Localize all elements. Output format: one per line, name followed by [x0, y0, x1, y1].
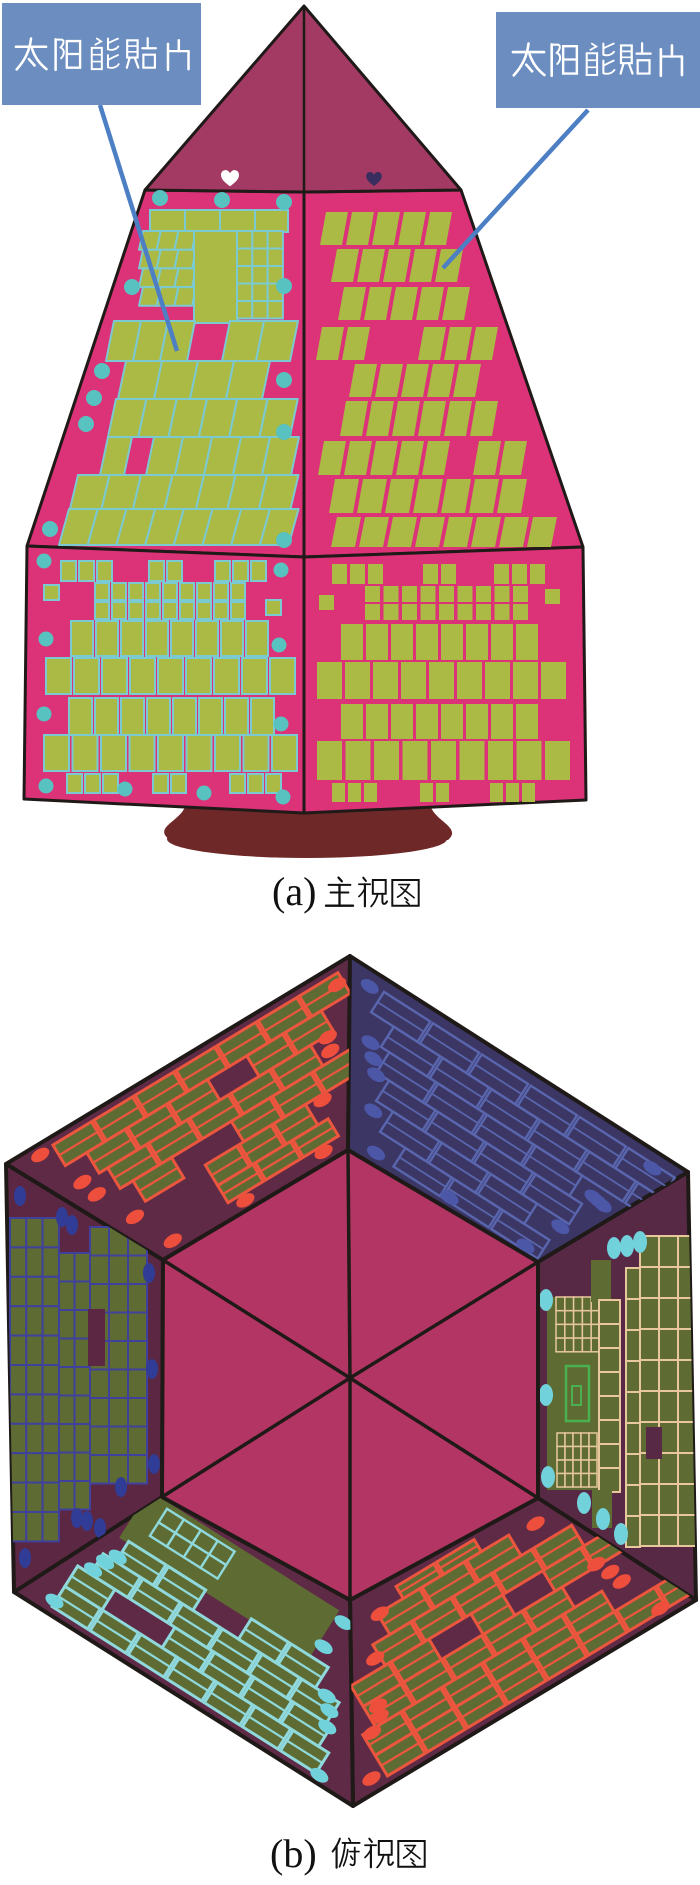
svg-text:(a): (a) [272, 869, 316, 914]
svg-text:(b): (b) [270, 1831, 317, 1876]
